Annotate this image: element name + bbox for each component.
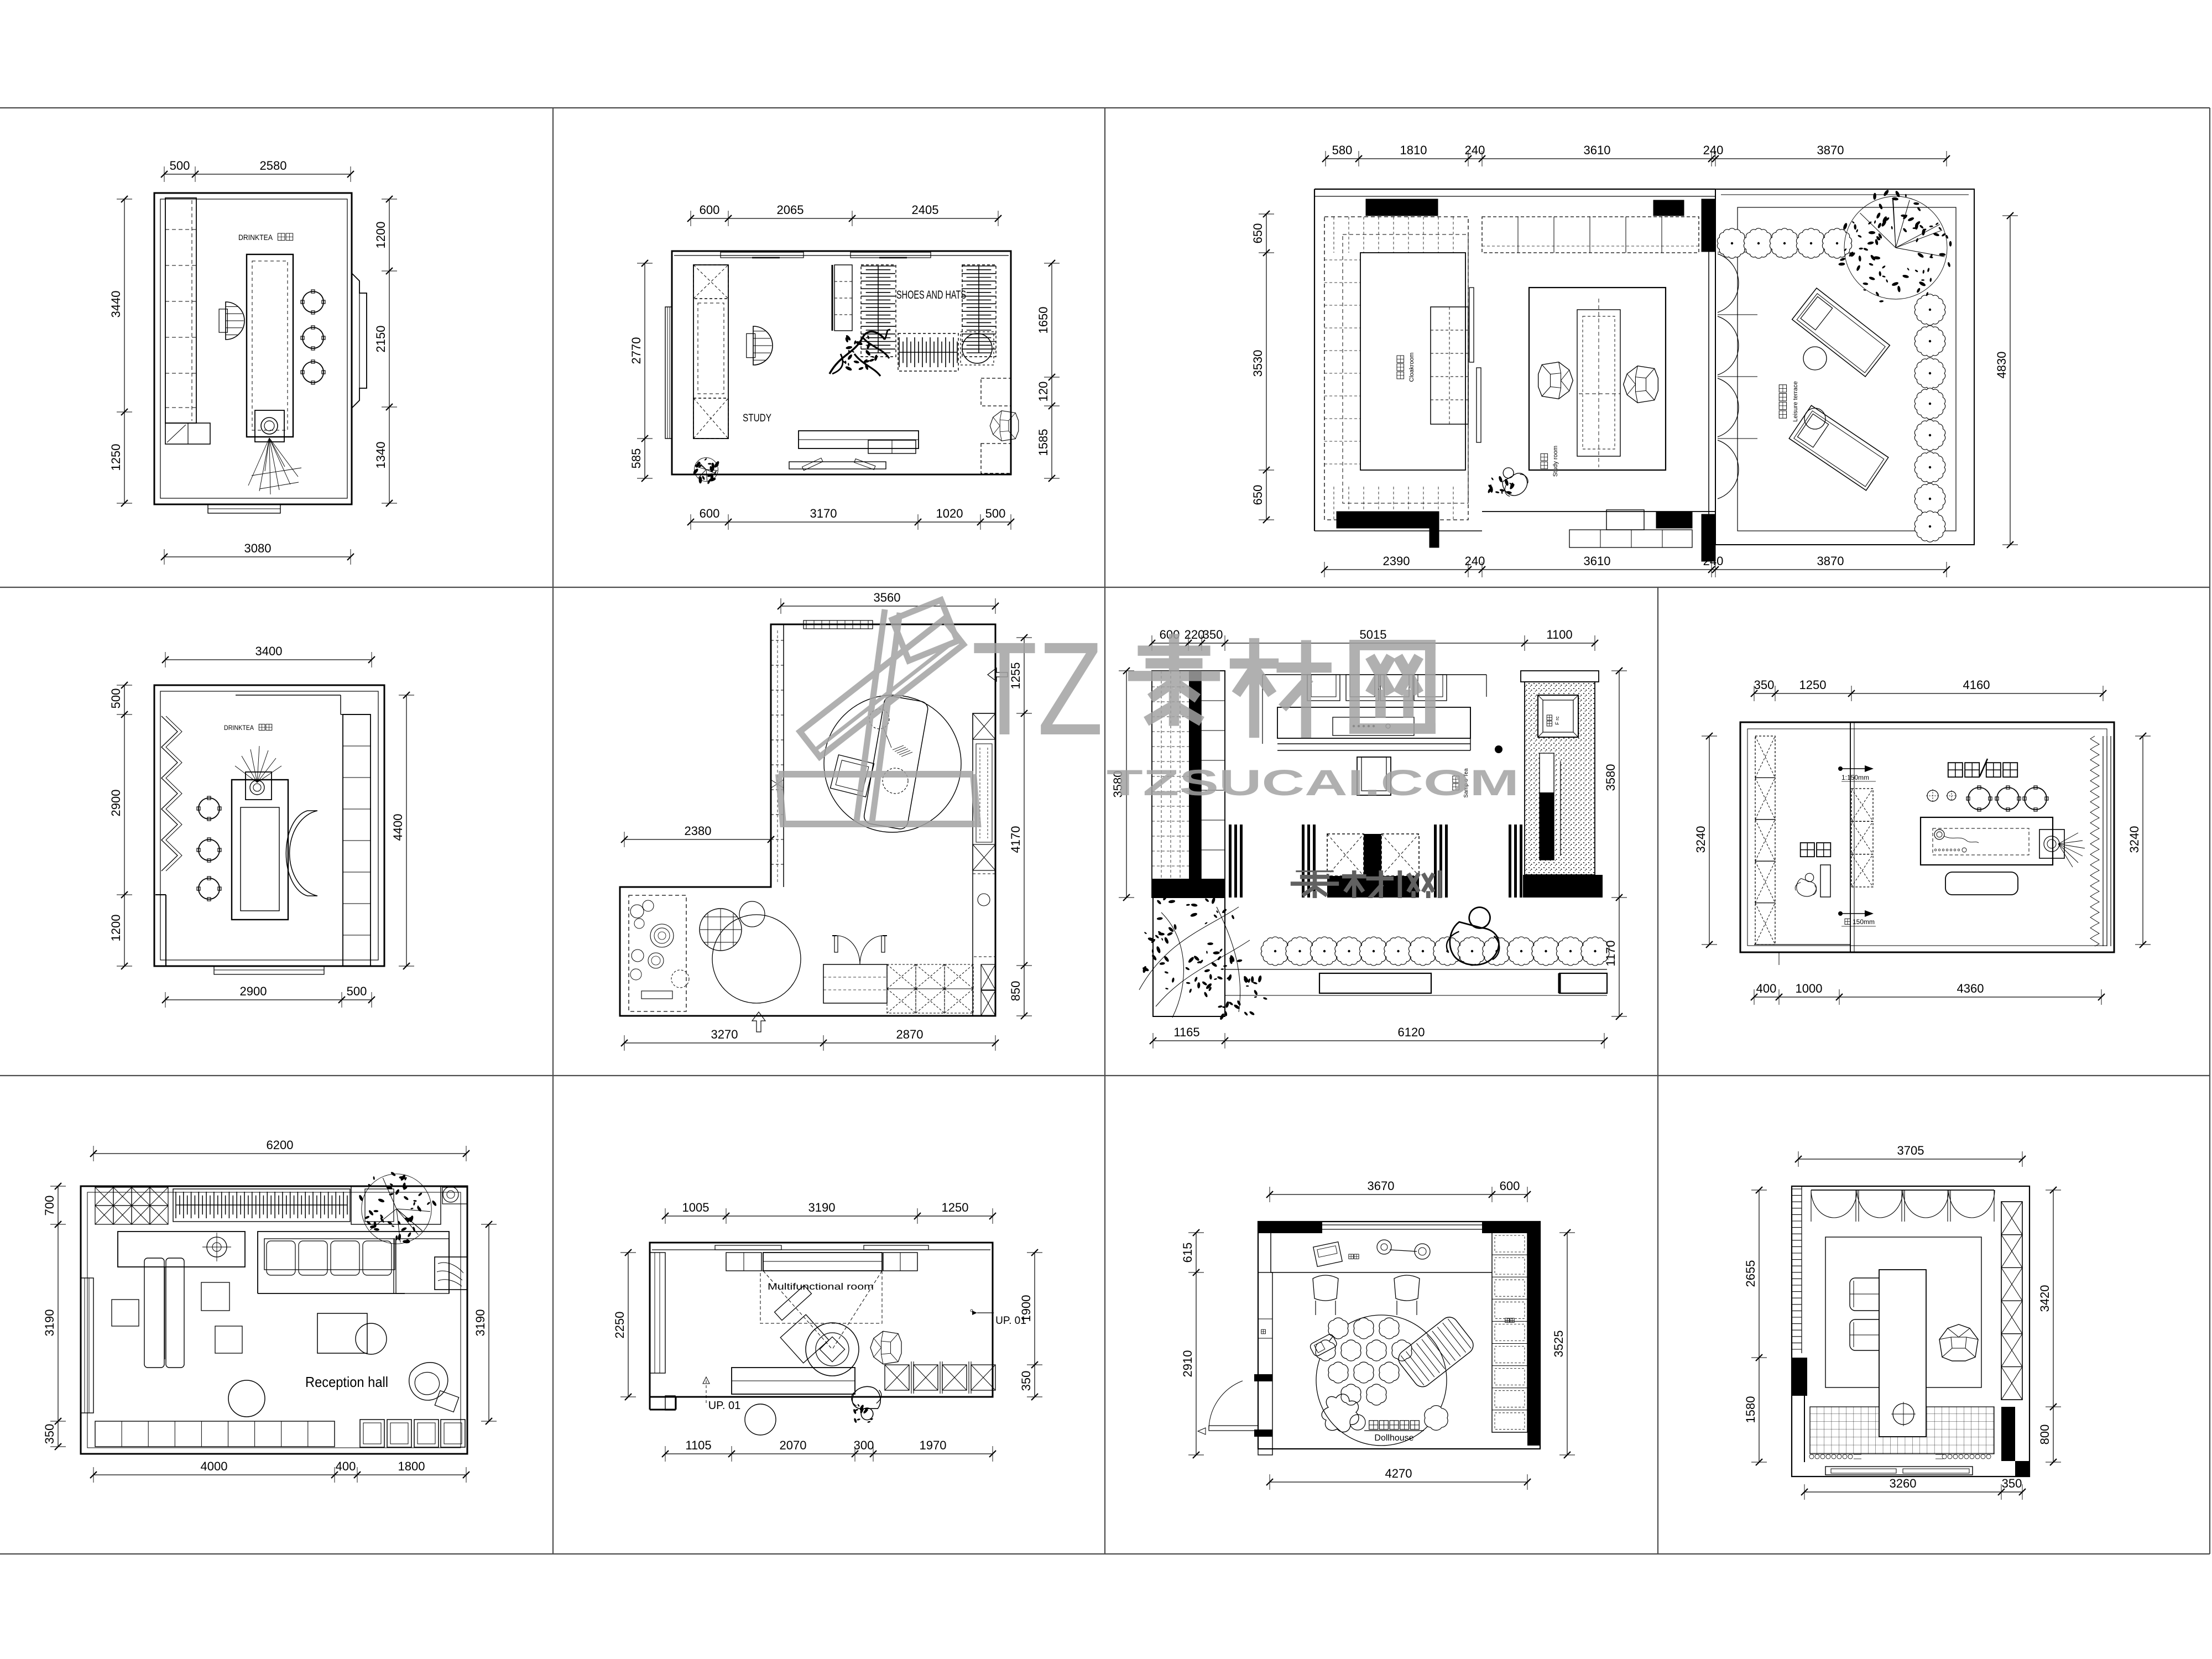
svg-text:4360: 4360 (1957, 982, 1984, 995)
svg-text:3240: 3240 (2127, 826, 2141, 853)
svg-text:3610: 3610 (1584, 143, 1611, 157)
svg-text:2770: 2770 (629, 337, 643, 364)
svg-text:SHOES AND HATS: SHOES AND HATS (896, 289, 966, 301)
svg-text:240: 240 (1465, 143, 1485, 157)
svg-text:3670: 3670 (1368, 1179, 1395, 1193)
svg-text:2070: 2070 (780, 1438, 807, 1452)
svg-text:3190: 3190 (473, 1310, 487, 1337)
svg-text:TZ: TZ (972, 614, 1103, 763)
svg-text:3400: 3400 (255, 644, 283, 658)
svg-text:2150: 2150 (374, 326, 388, 353)
svg-text:1580: 1580 (1744, 1396, 1757, 1423)
svg-text:3530: 3530 (1251, 350, 1265, 377)
svg-text:1250: 1250 (109, 444, 123, 471)
svg-text:3870: 3870 (1817, 143, 1844, 157)
svg-text:500: 500 (347, 984, 367, 998)
svg-text:2380: 2380 (685, 824, 712, 838)
svg-text:3080: 3080 (244, 541, 272, 555)
svg-text:1585: 1585 (1036, 429, 1050, 456)
svg-text:1165: 1165 (1173, 1025, 1199, 1039)
svg-text:500: 500 (170, 159, 190, 173)
svg-text:3260: 3260 (1890, 1477, 1917, 1490)
svg-text:350: 350 (1019, 1371, 1033, 1391)
svg-text:1810: 1810 (1400, 143, 1427, 157)
svg-text:4170: 4170 (1009, 826, 1022, 853)
svg-text:400: 400 (336, 1459, 356, 1473)
svg-text:1105: 1105 (685, 1438, 711, 1452)
svg-text:150mm: 150mm (1853, 918, 1875, 926)
svg-text:4270: 4270 (1385, 1467, 1412, 1480)
svg-text:3870: 3870 (1817, 554, 1844, 568)
svg-text:3270: 3270 (711, 1027, 738, 1041)
svg-text:F rc: F rc (1554, 716, 1560, 725)
svg-text:4400: 4400 (391, 814, 405, 841)
svg-text:700: 700 (43, 1196, 56, 1216)
svg-text:850: 850 (1009, 981, 1022, 1001)
svg-text:1970: 1970 (920, 1438, 947, 1452)
svg-text:2405: 2405 (912, 203, 939, 217)
svg-text:3705: 3705 (1897, 1144, 1924, 1157)
svg-text:6120: 6120 (1398, 1025, 1425, 1039)
svg-text:1250: 1250 (1799, 678, 1827, 692)
svg-text:1100: 1100 (1546, 628, 1572, 641)
svg-text:STUDY: STUDY (743, 413, 771, 424)
svg-text:2900: 2900 (109, 790, 123, 817)
svg-text:4160: 4160 (1963, 678, 1990, 692)
svg-text:2900: 2900 (240, 984, 267, 998)
svg-text:4830: 4830 (1995, 352, 2008, 379)
svg-text:1900: 1900 (1019, 1295, 1033, 1322)
svg-text:600: 600 (700, 203, 720, 217)
svg-text:3525: 3525 (1552, 1331, 1566, 1358)
svg-text:4000: 4000 (201, 1459, 228, 1473)
svg-text:350: 350 (43, 1424, 56, 1444)
svg-text:Reception hall: Reception hall (305, 1374, 388, 1390)
svg-text:500: 500 (985, 507, 1006, 520)
svg-text:DRINKTEA: DRINKTEA (224, 724, 254, 732)
svg-text:Dollhouse: Dollhouse (1374, 1433, 1413, 1443)
svg-text:Leisure terrace: Leisure terrace (1792, 381, 1799, 421)
svg-text:600: 600 (700, 507, 720, 520)
svg-text:3240: 3240 (1694, 826, 1708, 853)
svg-text:350: 350 (1203, 628, 1223, 641)
svg-text:3580: 3580 (1604, 764, 1618, 791)
svg-text:UP. 01: UP. 01 (708, 1400, 741, 1412)
svg-text:3190: 3190 (808, 1201, 836, 1214)
svg-text:300: 300 (854, 1438, 874, 1452)
svg-text:240: 240 (1703, 143, 1724, 157)
svg-text:2580: 2580 (260, 159, 287, 173)
svg-text:1005: 1005 (682, 1201, 709, 1214)
svg-text:650: 650 (1251, 485, 1265, 505)
svg-text:1340: 1340 (374, 442, 388, 469)
svg-text:1250: 1250 (942, 1201, 969, 1214)
svg-text:Study room: Study room (1552, 446, 1559, 477)
svg-text:TZSUCAI.COM: TZSUCAI.COM (1107, 762, 1519, 803)
svg-text:1170: 1170 (1604, 940, 1618, 966)
svg-text:2065: 2065 (777, 203, 804, 217)
svg-text:240: 240 (1465, 554, 1485, 568)
svg-text:615: 615 (1181, 1243, 1194, 1263)
svg-text:580: 580 (1332, 143, 1353, 157)
svg-text:120: 120 (1036, 382, 1050, 402)
svg-text:Cloakroom: Cloakroom (1408, 352, 1415, 382)
svg-text:1800: 1800 (398, 1459, 425, 1473)
svg-text:Multifunctional room: Multifunctional room (768, 1281, 874, 1292)
svg-text:3560: 3560 (874, 591, 901, 604)
svg-text:400: 400 (1756, 982, 1777, 995)
svg-text:3190: 3190 (43, 1310, 56, 1337)
svg-text:600: 600 (1500, 1179, 1520, 1193)
svg-text:2655: 2655 (1744, 1260, 1757, 1287)
svg-text:DRINKTEA: DRINKTEA (238, 233, 273, 242)
svg-text:2250: 2250 (613, 1312, 627, 1339)
svg-text:650: 650 (1251, 223, 1265, 244)
svg-text:220: 220 (1185, 628, 1205, 641)
svg-text:2870: 2870 (896, 1027, 924, 1041)
svg-text:350: 350 (2002, 1477, 2022, 1490)
svg-text:800: 800 (2038, 1425, 2052, 1445)
svg-text:3170: 3170 (810, 507, 837, 520)
svg-text:1000: 1000 (1796, 982, 1823, 995)
svg-text:5015: 5015 (1360, 628, 1387, 641)
svg-text:350: 350 (1754, 678, 1775, 692)
svg-text:1:150mm: 1:150mm (1841, 774, 1869, 781)
svg-text:1650: 1650 (1036, 307, 1050, 334)
svg-text:3610: 3610 (1584, 554, 1611, 568)
svg-text:500: 500 (109, 688, 123, 709)
svg-text:1020: 1020 (936, 507, 963, 520)
svg-text:2910: 2910 (1181, 1350, 1194, 1378)
svg-text:6200: 6200 (267, 1138, 294, 1152)
svg-text:3440: 3440 (109, 291, 123, 318)
svg-text:1200: 1200 (374, 222, 388, 249)
svg-text:1200: 1200 (109, 915, 123, 942)
svg-text:2390: 2390 (1383, 554, 1410, 568)
svg-text:3420: 3420 (2038, 1285, 2052, 1312)
svg-text:585: 585 (629, 448, 643, 469)
svg-text:240: 240 (1703, 554, 1724, 568)
